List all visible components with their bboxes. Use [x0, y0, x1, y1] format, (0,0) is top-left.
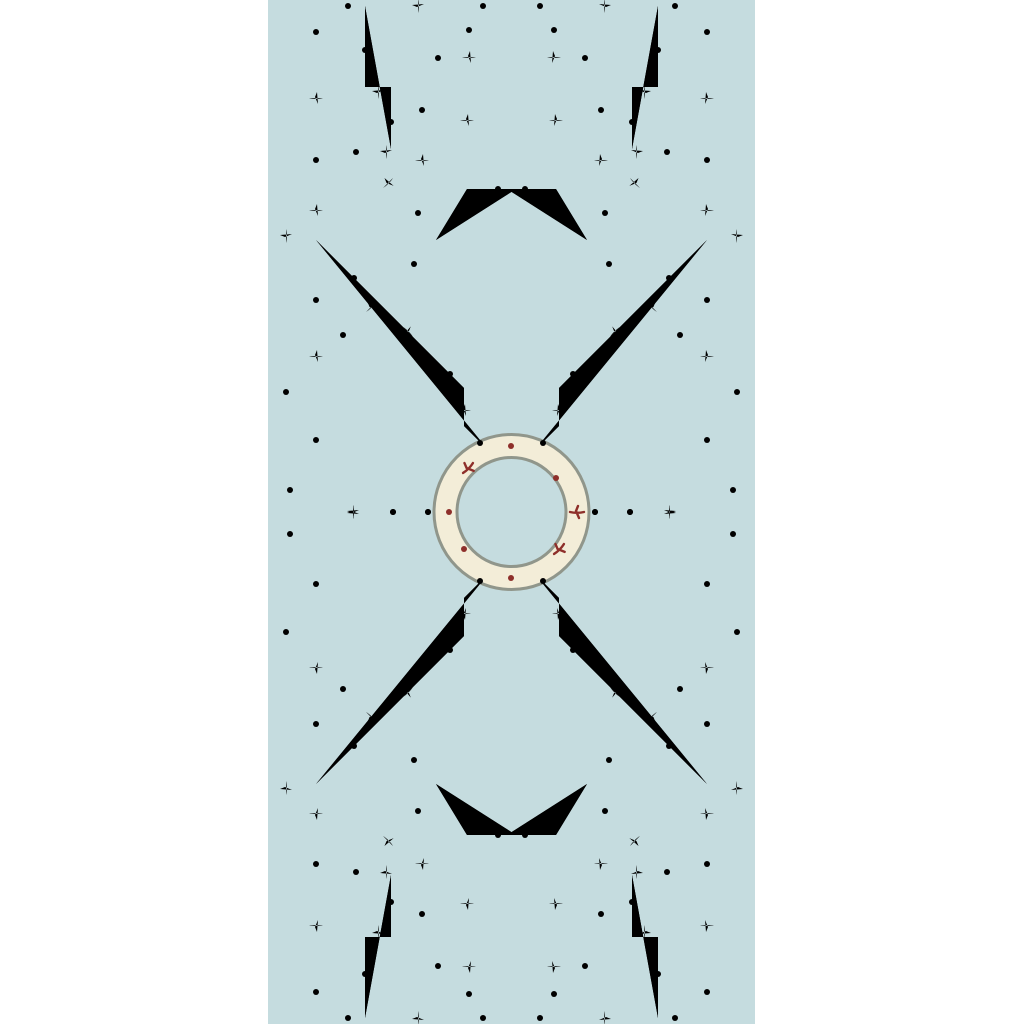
- page-background: Chinoiserie bamboo trellis wallpaper pat…: [0, 0, 1024, 1024]
- wallpaper-pattern-svg: Chinoiserie bamboo trellis wallpaper pat…: [268, 0, 755, 1024]
- pattern-ground: [268, 0, 755, 1024]
- wallpaper-swatch: Chinoiserie bamboo trellis wallpaper pat…: [268, 0, 755, 1024]
